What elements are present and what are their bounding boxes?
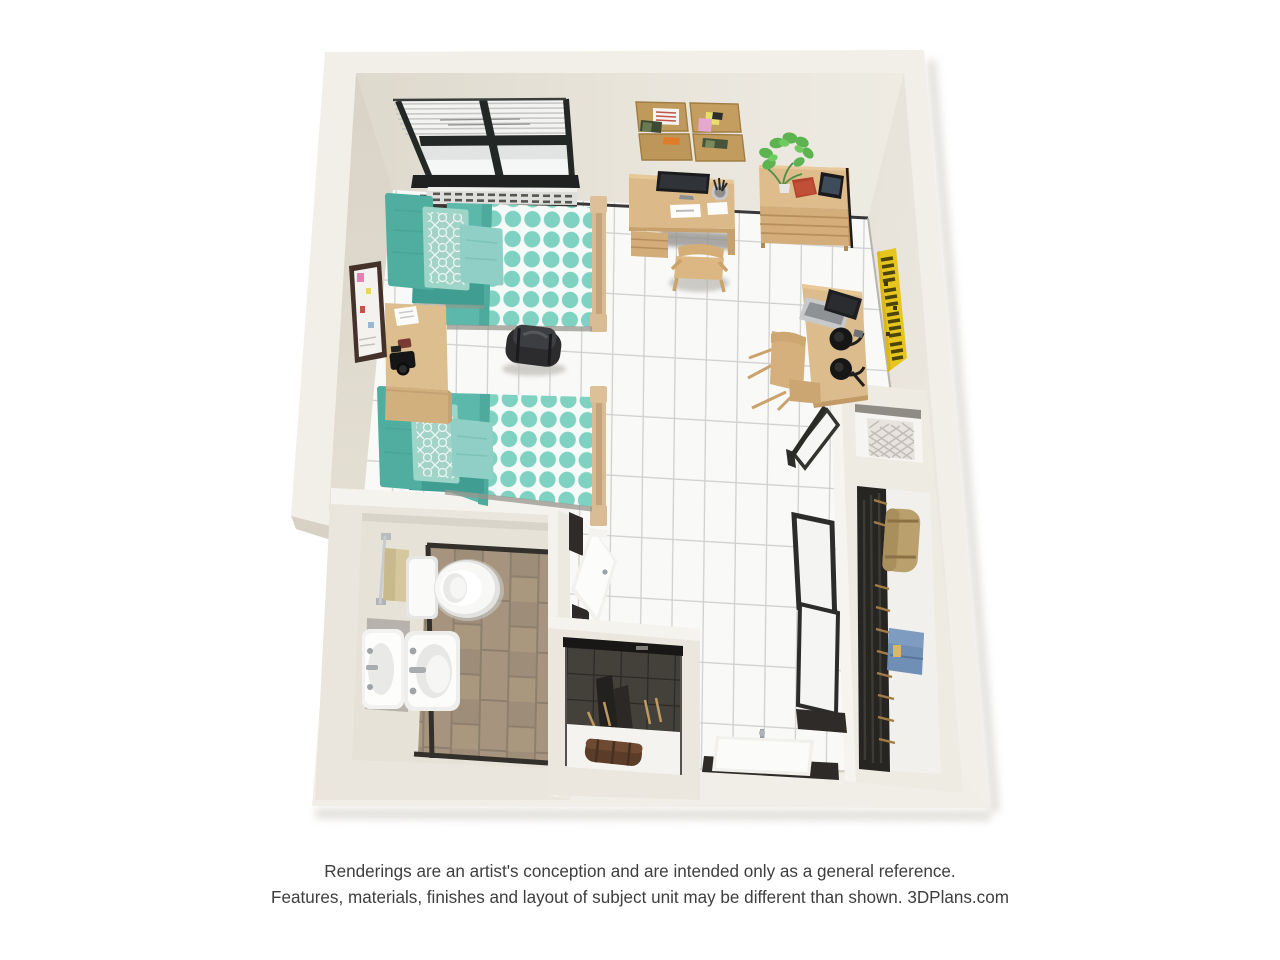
svg-text:Features, materials, finishes: Features, materials, finishes and layout… bbox=[271, 888, 1009, 907]
svg-text:Renderings are an artist's con: Renderings are an artist's conception an… bbox=[324, 862, 955, 881]
